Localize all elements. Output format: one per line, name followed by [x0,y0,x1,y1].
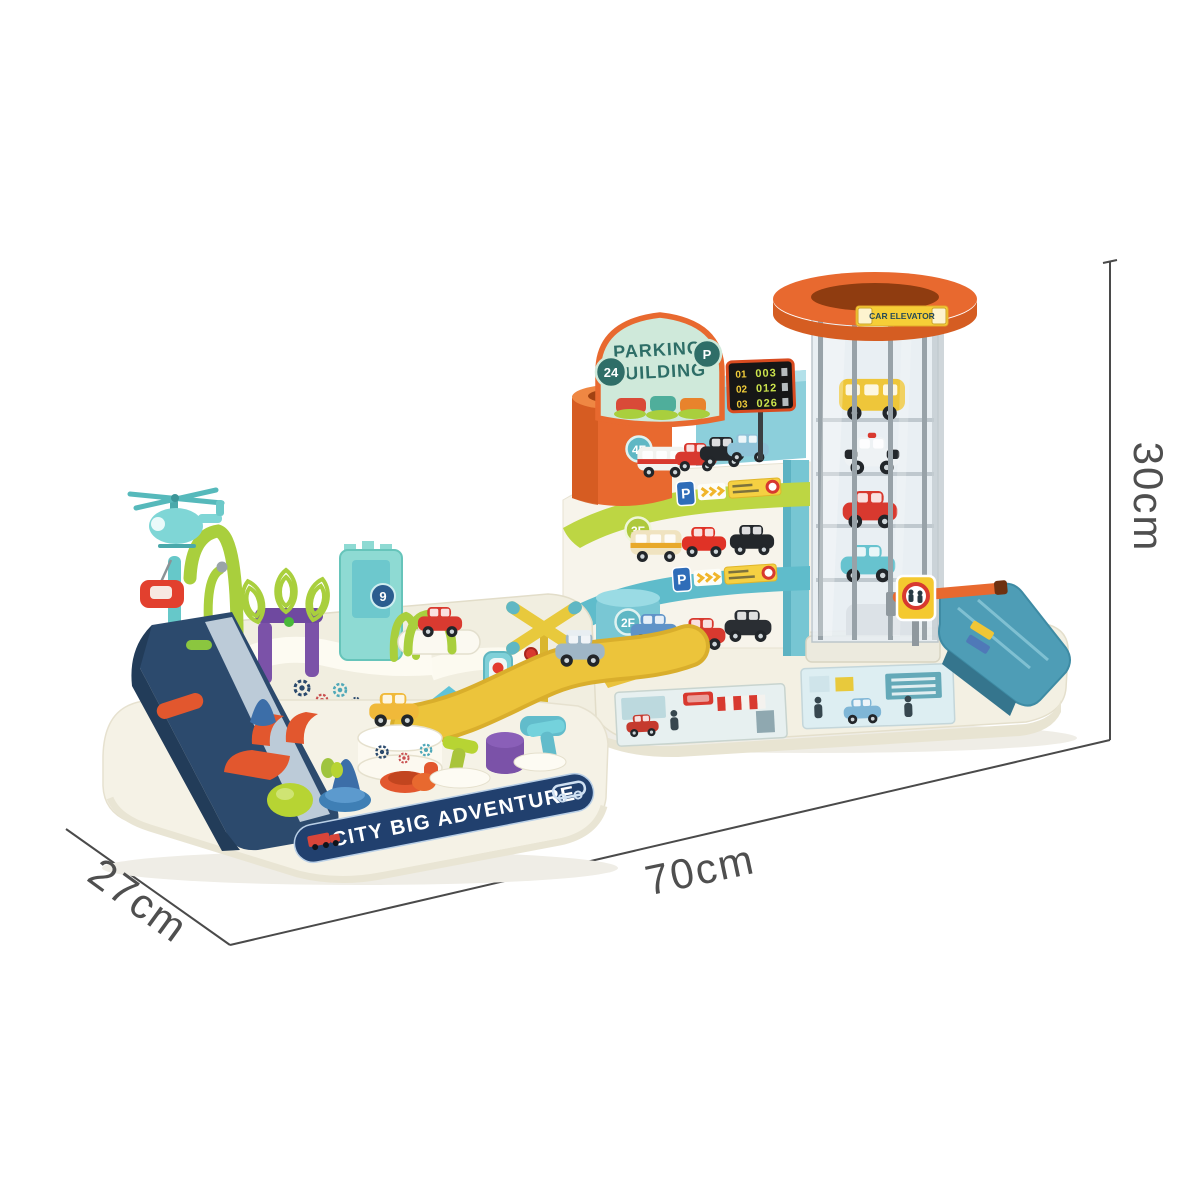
parking-sign-cars [614,396,710,420]
sign-badge-p-label: P [703,347,712,362]
elevator-banner-label: CAR ELEVATOR [869,311,935,321]
sign-badge-p: P [693,340,721,368]
scoreboard-row-label: 03 [736,399,748,410]
dimension-line-height [1103,260,1117,740]
gas-station-sticker [615,684,788,747]
sign-badge-24: 24 [596,357,626,387]
scoreboard-row-value: 012 [756,382,778,395]
scoreboard-row-label: 02 [736,384,748,395]
product-photo: 4F 3F 2F [0,0,1200,1200]
repair-shop-sticker [801,663,955,728]
tower-badge-label: 9 [379,589,386,604]
dimension-height-label: 30cm [1125,442,1172,553]
p-sign-letter: P [677,571,687,588]
toy-parking-building: 4F 3F 2F [561,272,1070,757]
scoreboard-row-value: 003 [755,367,777,380]
purple-button [486,732,524,774]
scoreboard-row-value: 026 [756,397,778,410]
scoreboard-row-label: 01 [735,369,747,380]
p-sign-letter: P [681,485,691,502]
elevator-banner: CAR ELEVATOR [856,306,948,326]
sign-badge-24-label: 24 [604,365,619,380]
awning-stripes [717,695,766,711]
parking-sign: PARKING BUILDING 24 P [596,315,722,425]
